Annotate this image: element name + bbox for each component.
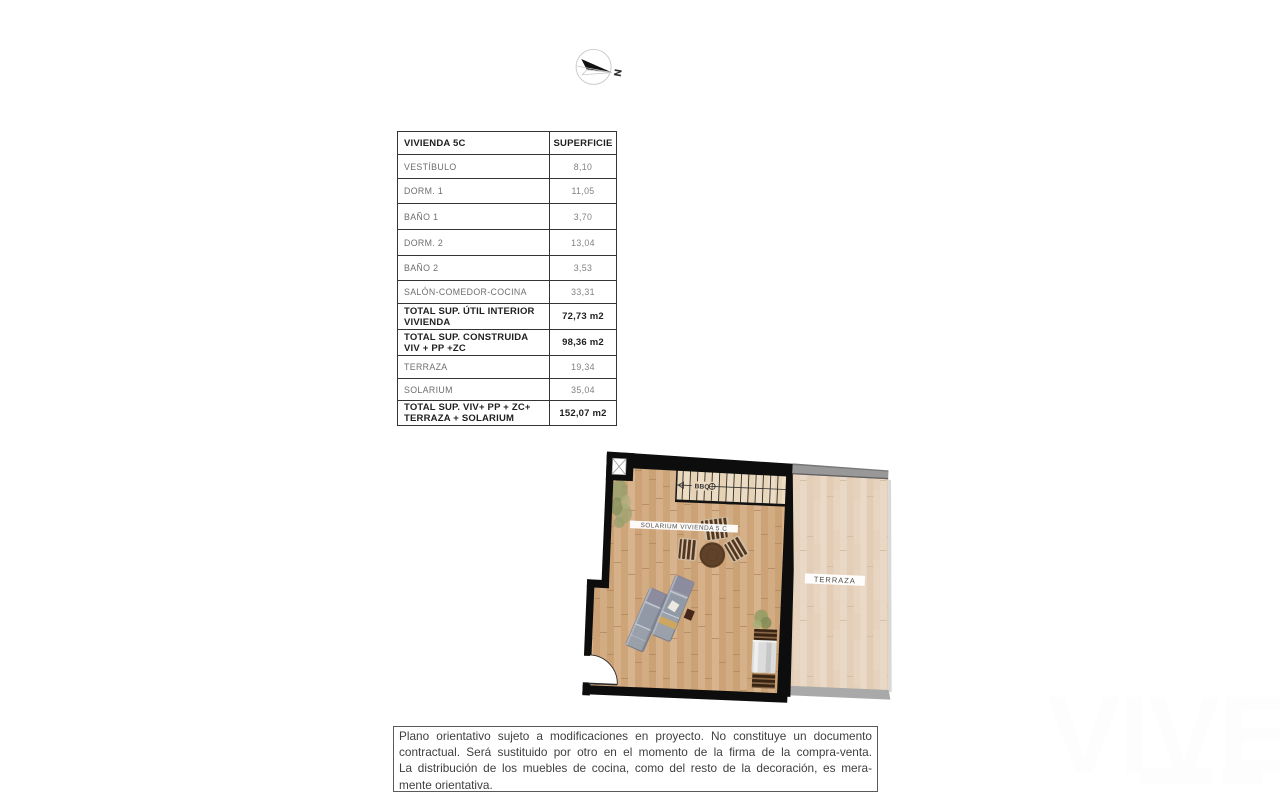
svg-text:TERRAZA: TERRAZA <box>814 575 856 586</box>
svg-text:BBQ: BBQ <box>694 483 709 491</box>
